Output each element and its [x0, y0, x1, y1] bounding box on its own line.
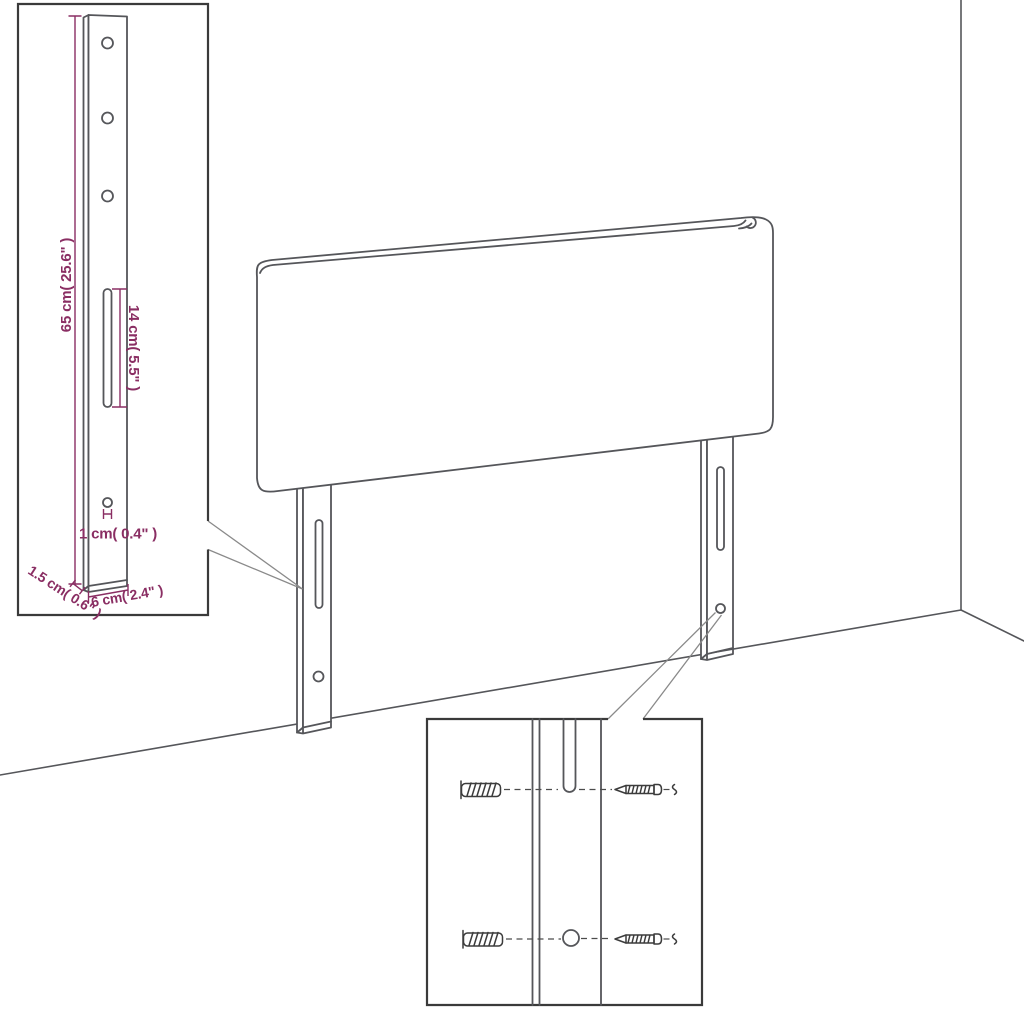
right-leg — [701, 428, 733, 660]
left-leg-front-face — [303, 478, 331, 728]
left-leg — [297, 478, 331, 734]
dimension-slot-label: 14 cm( 5.5" ) — [125, 305, 142, 391]
screw-bottom-squiggle — [673, 934, 677, 944]
leg-strip-hole — [563, 930, 579, 946]
diagram-canvas: 65 cm( 25.6" ) 14 cm( 5.5" ) 1 cm( 0.4" … — [0, 0, 1024, 1024]
screw-bottom — [615, 934, 677, 944]
dimension-height-label: 65 cm( 25.6" ) — [58, 238, 75, 333]
screw-top — [615, 785, 677, 795]
leg-detail-inset: 65 cm( 25.6" ) 14 cm( 5.5" ) 1 cm( 0.4" … — [18, 4, 208, 621]
screw-top-tip — [615, 786, 626, 794]
wall-anchor-bottom — [463, 931, 503, 949]
screw-top-shaft — [626, 786, 654, 794]
wall-anchor-top — [461, 781, 501, 799]
leg-strip-lines — [533, 719, 602, 1005]
hardware-detail-inset — [427, 719, 702, 1005]
bracket-front-face — [89, 15, 128, 586]
leg-strip-slot — [564, 719, 576, 792]
screw-top-squiggle — [673, 785, 677, 795]
screw-bottom-tip — [615, 935, 626, 943]
screw-top-head — [654, 785, 662, 795]
floor-line-left — [0, 610, 961, 775]
assembly-diagram: 65 cm( 25.6" ) 14 cm( 5.5" ) 1 cm( 0.4" … — [0, 0, 1024, 1024]
hardware-detail-inset-border — [427, 719, 702, 1005]
panel-outline — [257, 217, 773, 492]
screw-bottom-shaft — [626, 935, 654, 943]
screw-bottom-head — [654, 934, 662, 944]
headboard-panel — [257, 217, 773, 492]
hardware-guide-lines — [504, 790, 612, 940]
callout-lines — [208, 521, 722, 719]
dimension-hole-label: 1 cm( 0.4" ) — [79, 526, 157, 543]
leg-detail-callout — [208, 521, 303, 589]
floor-line-right — [961, 610, 1024, 641]
right-leg-front-face — [707, 428, 733, 654]
leg-strip-zoom — [533, 719, 602, 1005]
